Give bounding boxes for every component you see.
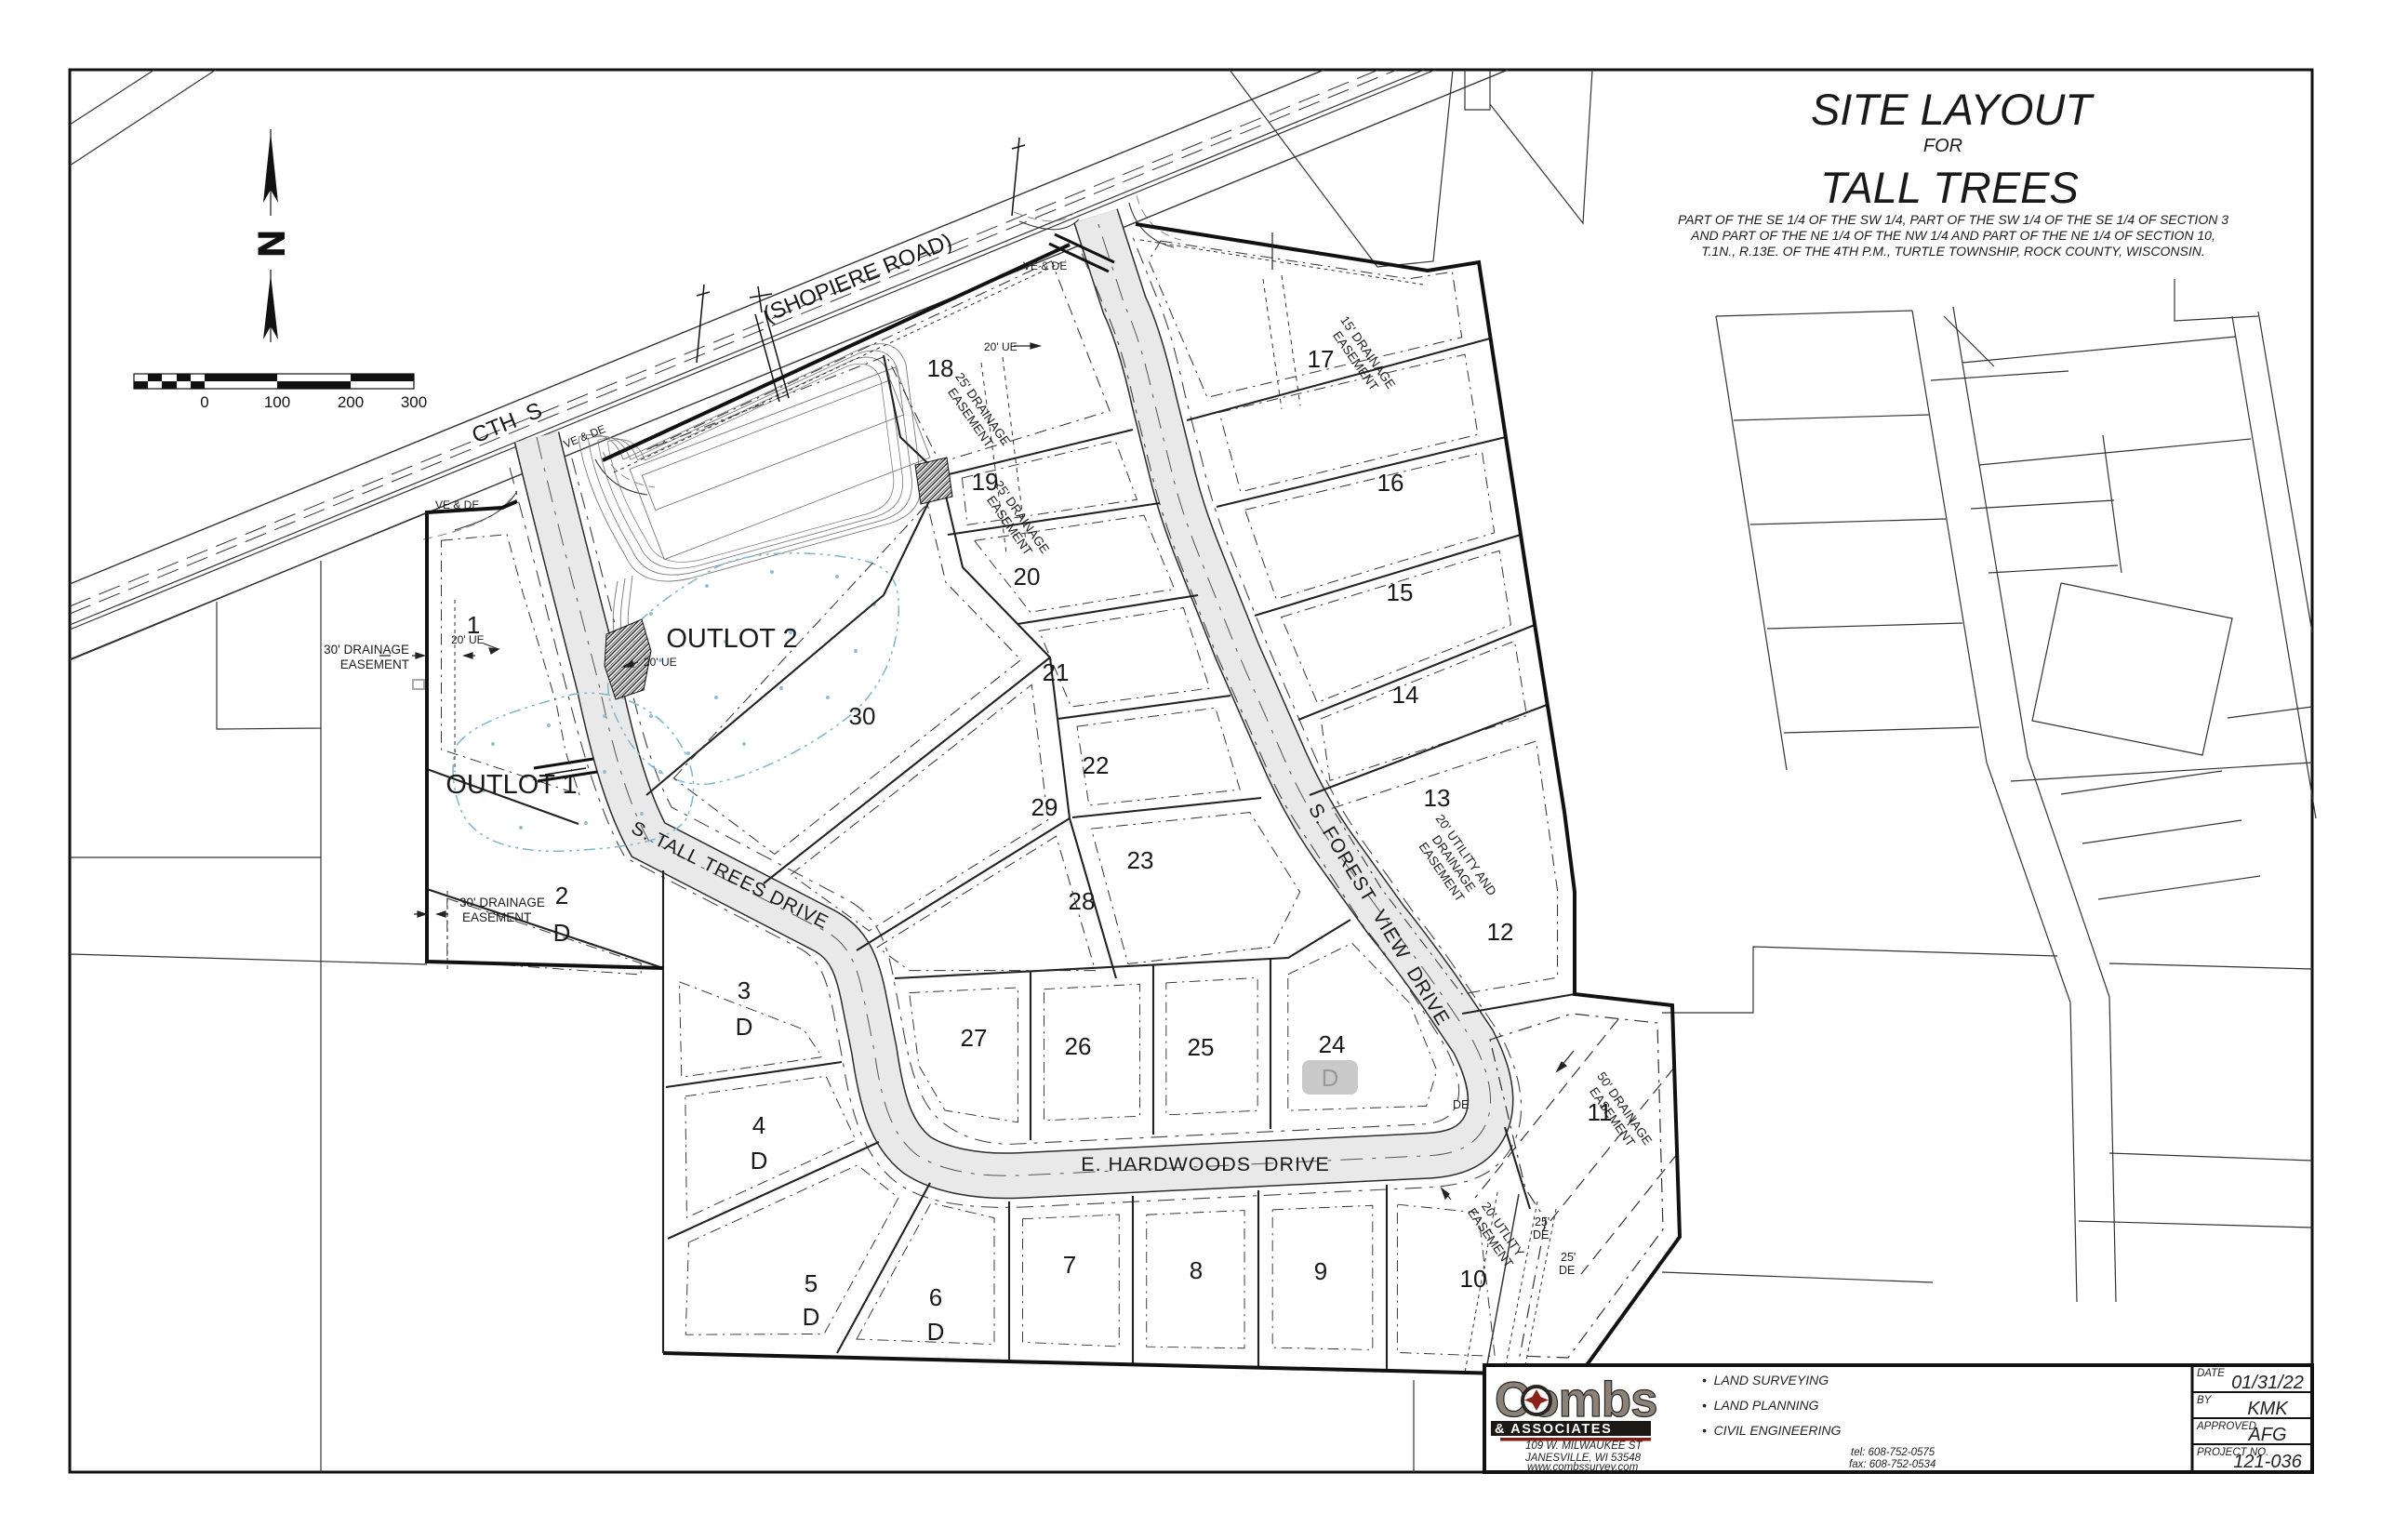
svg-text:APPROVED: APPROVED xyxy=(2196,1421,2256,1432)
svg-text:25: 25 xyxy=(1188,1033,1215,1061)
svg-text:17: 17 xyxy=(1308,345,1335,373)
svg-text:D: D xyxy=(1322,1064,1339,1092)
svg-text:OUTLOT 1: OUTLOT 1 xyxy=(446,770,577,800)
svg-text:T.1N., R.13E. OF THE 4TH P.M.,: T.1N., R.13E. OF THE 4TH P.M., TURTLE TO… xyxy=(1701,244,2204,259)
svg-text:20' UE: 20' UE xyxy=(451,633,485,646)
svg-text:19: 19 xyxy=(972,468,999,496)
svg-text:D: D xyxy=(553,919,571,947)
svg-text:25': 25' xyxy=(1535,1215,1550,1228)
svg-text:OUTLOT 2: OUTLOT 2 xyxy=(666,624,797,654)
svg-text:DE: DE xyxy=(1559,1264,1575,1277)
svg-text:16: 16 xyxy=(1377,469,1404,497)
svg-text:14: 14 xyxy=(1392,681,1419,709)
svg-text:21: 21 xyxy=(1043,658,1070,686)
svg-text:2: 2 xyxy=(555,882,568,909)
svg-text:tel: 608-752-0575: tel: 608-752-0575 xyxy=(1851,1447,1935,1458)
svg-text:D: D xyxy=(751,1147,768,1175)
svg-text:8: 8 xyxy=(1190,1256,1203,1284)
svg-text:• LAND SURVEYING: • LAND SURVEYING xyxy=(1702,1373,1829,1387)
svg-text:& ASSOCIATES: & ASSOCIATES xyxy=(1495,1422,1612,1437)
svg-text:26: 26 xyxy=(1065,1032,1092,1060)
svg-text:30' DRAINAGE: 30' DRAINAGE xyxy=(459,896,545,909)
svg-text:27: 27 xyxy=(961,1024,988,1052)
svg-text:TALL TREES: TALL TREES xyxy=(1820,163,2079,212)
svg-text:D: D xyxy=(803,1303,820,1331)
svg-text:VE & DE: VE & DE xyxy=(435,498,479,511)
svg-text:20' UE: 20' UE xyxy=(984,340,1018,353)
svg-text:VE & DE: VE & DE xyxy=(1023,259,1067,272)
svg-text:4: 4 xyxy=(752,1111,765,1139)
svg-text:DE: DE xyxy=(1533,1228,1549,1241)
svg-text:KMK: KMK xyxy=(2247,1399,2289,1419)
svg-text:30: 30 xyxy=(849,702,876,730)
svg-text:E. HARDWOODS DRIVE: E. HARDWOODS DRIVE xyxy=(1081,1153,1329,1175)
svg-text:VE & DE: VE & DE xyxy=(562,422,607,451)
svg-text:AFG: AFG xyxy=(2247,1425,2286,1445)
svg-text:fax: 608-752-0534: fax: 608-752-0534 xyxy=(1849,1459,1935,1470)
svg-text:BY: BY xyxy=(2197,1395,2213,1406)
svg-text:10: 10 xyxy=(1460,1265,1487,1293)
svg-text:D: D xyxy=(927,1318,945,1346)
svg-text:3: 3 xyxy=(738,976,751,1004)
svg-text:PART OF THE SE 1/4 OF THE SW 1: PART OF THE SE 1/4 OF THE SW 1/4, PART O… xyxy=(1678,212,2228,227)
svg-text:15: 15 xyxy=(1387,578,1414,606)
svg-text:30' DRAINAGE: 30' DRAINAGE xyxy=(324,643,409,657)
svg-text:121-036: 121-036 xyxy=(2233,1452,2302,1472)
svg-text:28: 28 xyxy=(1069,887,1096,915)
svg-text:5: 5 xyxy=(805,1269,818,1297)
svg-text:25': 25' xyxy=(1561,1251,1576,1264)
svg-text:12: 12 xyxy=(1487,918,1514,946)
svg-text:109 W. MILWAUKEE ST: 109 W. MILWAUKEE ST xyxy=(1525,1440,1643,1452)
svg-text:EASEMENT: EASEMENT xyxy=(462,910,531,924)
svg-text:• CIVIL ENGINEERING: • CIVIL ENGINEERING xyxy=(1702,1423,1841,1438)
svg-text:01/31/22: 01/31/22 xyxy=(2231,1373,2304,1393)
svg-text:0: 0 xyxy=(200,393,208,411)
svg-text:300: 300 xyxy=(401,393,427,411)
svg-text:13: 13 xyxy=(1424,784,1451,812)
svg-text:18: 18 xyxy=(927,354,954,382)
svg-text:7: 7 xyxy=(1063,1251,1076,1279)
svg-text:• LAND PLANNING: • LAND PLANNING xyxy=(1702,1398,1819,1413)
svg-text:20: 20 xyxy=(1014,563,1041,591)
svg-text:D: D xyxy=(736,1013,753,1041)
svg-text:SITE LAYOUT: SITE LAYOUT xyxy=(1811,85,2095,134)
svg-text:9: 9 xyxy=(1314,1257,1327,1285)
svg-text:100: 100 xyxy=(264,393,290,411)
svg-text:23: 23 xyxy=(1127,846,1154,874)
svg-text:N: N xyxy=(250,231,291,258)
svg-text:20' UE: 20' UE xyxy=(644,656,677,669)
svg-text:Combs: Combs xyxy=(1495,1373,1657,1427)
svg-text:FOR: FOR xyxy=(1923,136,1962,156)
svg-text:22: 22 xyxy=(1083,751,1110,779)
svg-text:6: 6 xyxy=(929,1283,942,1311)
svg-text:S. FOREST VIEW DRIVE: S. FOREST VIEW DRIVE xyxy=(1304,800,1454,1029)
svg-text:200: 200 xyxy=(338,393,364,411)
svg-text:AND PART OF THE NE 1/4 OF THE: AND PART OF THE NE 1/4 OF THE NW 1/4 AND… xyxy=(1690,228,2215,243)
svg-text:29: 29 xyxy=(1031,793,1058,821)
svg-text:EASEMENT: EASEMENT xyxy=(340,657,409,671)
svg-text:DATE: DATE xyxy=(2197,1368,2225,1379)
svg-text:www.combssurvey.com: www.combssurvey.com xyxy=(1527,1462,1639,1473)
svg-text:24: 24 xyxy=(1319,1030,1346,1058)
